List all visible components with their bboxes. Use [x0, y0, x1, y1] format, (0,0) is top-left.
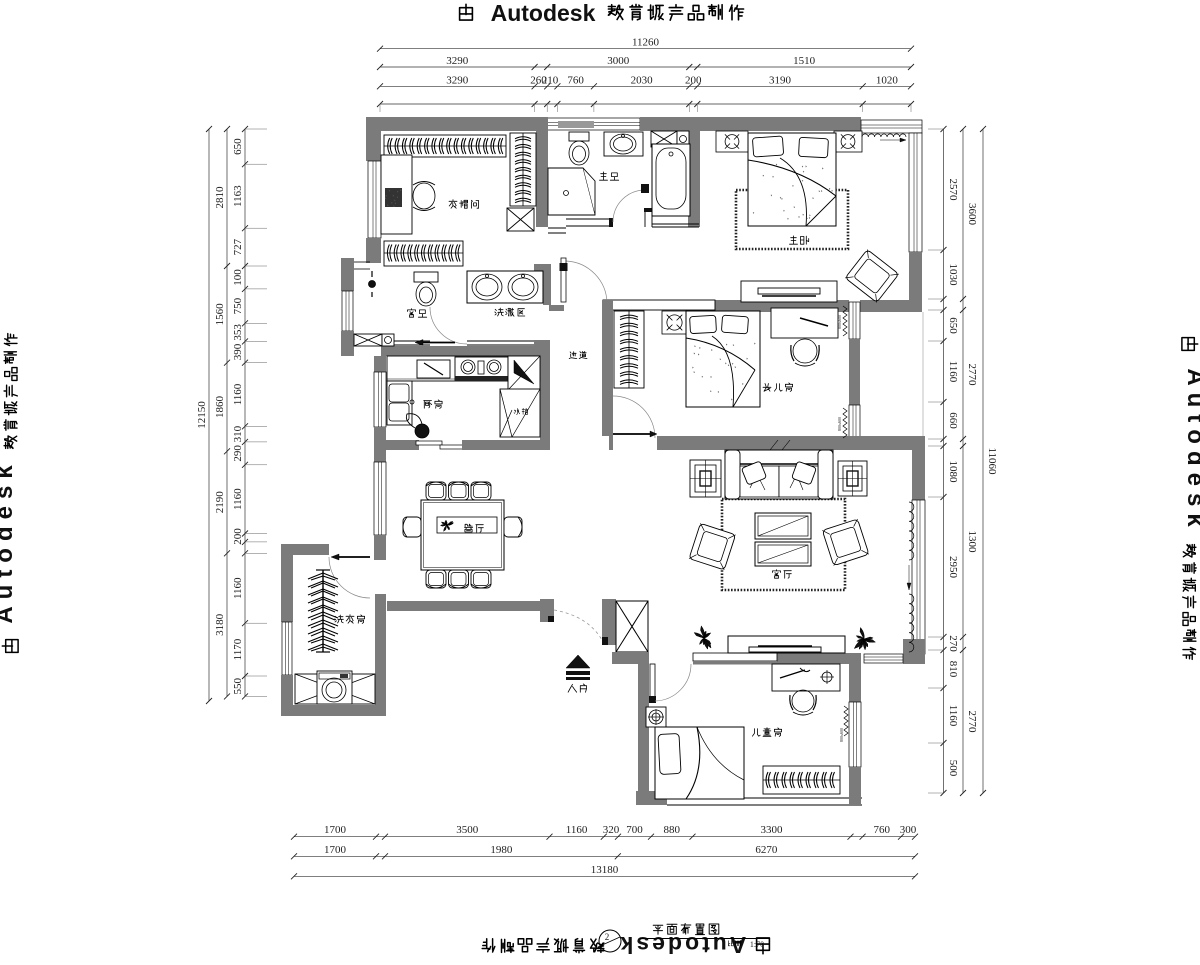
- svg-text:2770: 2770: [966, 711, 978, 734]
- svg-text:1160: 1160: [232, 577, 244, 599]
- svg-text:1160: 1160: [566, 824, 588, 836]
- svg-text:1170: 1170: [232, 638, 244, 660]
- svg-text:800x600: 800x600: [839, 728, 844, 742]
- svg-text:310: 310: [232, 425, 244, 442]
- svg-text:3290: 3290: [446, 55, 469, 67]
- svg-text:1160: 1160: [947, 361, 959, 383]
- svg-text:700: 700: [626, 824, 643, 836]
- svg-text:Autodesk: Autodesk: [491, 0, 596, 26]
- svg-text:1160: 1160: [232, 383, 244, 405]
- svg-text:1020: 1020: [876, 74, 899, 86]
- svg-text:1163: 1163: [232, 185, 244, 207]
- svg-text:2030: 2030: [631, 74, 654, 86]
- svg-text:270: 270: [947, 635, 959, 652]
- svg-text:760: 760: [567, 74, 584, 86]
- svg-text:11060: 11060: [986, 447, 998, 475]
- svg-text:353: 353: [232, 324, 244, 341]
- svg-text:880: 880: [664, 824, 681, 836]
- svg-text:1860: 1860: [214, 396, 226, 419]
- svg-text:210: 210: [542, 74, 559, 86]
- svg-text:11260: 11260: [632, 37, 660, 49]
- svg-text:760: 760: [874, 824, 891, 836]
- svg-text:650: 650: [947, 317, 959, 334]
- svg-text:300: 300: [900, 824, 917, 836]
- svg-text:2950: 2950: [947, 556, 959, 579]
- svg-text:6270: 6270: [755, 844, 778, 856]
- svg-text:1160: 1160: [232, 488, 244, 510]
- svg-text:Autodesk: Autodesk: [618, 932, 747, 958]
- svg-text:727: 727: [232, 238, 244, 255]
- svg-text:500: 500: [947, 760, 959, 777]
- svg-text:3000: 3000: [607, 55, 630, 67]
- svg-text:660: 660: [947, 412, 959, 429]
- svg-text:750: 750: [232, 297, 244, 314]
- svg-text:Autodesk: Autodesk: [0, 458, 18, 623]
- svg-text:2190: 2190: [214, 491, 226, 514]
- svg-text:1:70: 1:70: [750, 940, 764, 949]
- svg-text:800x600: 800x600: [837, 315, 842, 329]
- svg-text:320: 320: [603, 824, 620, 836]
- svg-text:3500: 3500: [456, 824, 479, 836]
- svg-text:550: 550: [232, 677, 244, 694]
- svg-text:650: 650: [232, 138, 244, 155]
- svg-text:1560: 1560: [214, 303, 226, 326]
- svg-text:3180: 3180: [214, 613, 226, 636]
- svg-text:2570: 2570: [947, 179, 959, 202]
- svg-text:3600: 3600: [966, 203, 978, 226]
- svg-text:290: 290: [232, 445, 244, 462]
- svg-text:1160: 1160: [947, 705, 959, 727]
- svg-text:1030: 1030: [947, 264, 959, 287]
- svg-text:1300: 1300: [966, 531, 978, 554]
- svg-text:3190: 3190: [769, 74, 792, 86]
- svg-text:3290: 3290: [446, 74, 469, 86]
- svg-text:810: 810: [947, 661, 959, 678]
- svg-text:12150: 12150: [196, 401, 208, 429]
- svg-text:200: 200: [232, 528, 244, 545]
- svg-text:100: 100: [232, 269, 244, 286]
- svg-text:2770: 2770: [966, 364, 978, 387]
- svg-text:200: 200: [685, 74, 702, 86]
- svg-text:1700: 1700: [324, 824, 347, 836]
- svg-text:800x600: 800x600: [837, 417, 842, 431]
- svg-text:13180: 13180: [591, 864, 619, 876]
- svg-text:3300: 3300: [761, 824, 784, 836]
- svg-text:1700: 1700: [324, 844, 347, 856]
- svg-text:2810: 2810: [214, 186, 226, 209]
- svg-text:2: 2: [605, 932, 610, 942]
- svg-text:1510: 1510: [793, 55, 816, 67]
- svg-text:1080: 1080: [947, 461, 959, 484]
- svg-text:Autodesk: Autodesk: [1182, 368, 1200, 533]
- svg-text:390: 390: [232, 343, 244, 360]
- svg-text:1980: 1980: [490, 844, 513, 856]
